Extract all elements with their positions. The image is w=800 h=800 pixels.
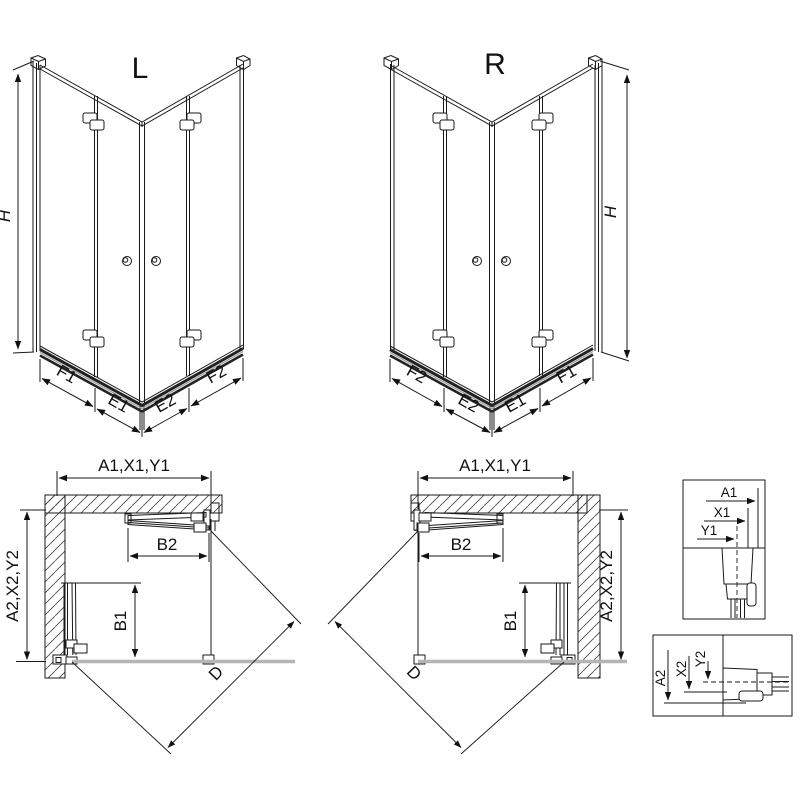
- door-top-slat-b: [421, 521, 503, 531]
- detail-label-x1: X1: [714, 505, 731, 520]
- d-dim-line: [168, 622, 294, 748]
- view-label-right: R: [484, 48, 506, 81]
- diagonal-dim-label: D: [205, 662, 227, 684]
- view-label-left: L: [132, 52, 149, 85]
- door-knob-icon: [123, 257, 132, 266]
- wall-profile-left: [33, 62, 40, 352]
- reference-lines: [664, 692, 746, 703]
- profile-bracket: [739, 691, 763, 701]
- wall-top: [45, 495, 222, 513]
- width-dim-label: A1,X1,Y1: [98, 456, 170, 475]
- door-top-dim-label: B2: [157, 535, 178, 554]
- d-dim-line: [335, 622, 461, 748]
- height-dim-label: H: [0, 209, 14, 222]
- depth-dim-label: A2,X2,Y2: [3, 550, 22, 622]
- hinge-icon: [83, 113, 104, 130]
- perspective-view-right: H F2 E2 E1 F1 R: [384, 48, 629, 437]
- detail-box-depth: A2 X2 Y2: [653, 635, 792, 716]
- door-hinge-bracket: [191, 513, 203, 521]
- door-hinge-bracket: [541, 644, 554, 653]
- hinge-icon: [433, 330, 454, 347]
- technical-drawing-page: H F1 E1 E2 F2 L H: [0, 0, 800, 800]
- door-top-slat-a: [425, 513, 503, 521]
- wall-top: [411, 495, 587, 513]
- fold-lines: [95, 96, 190, 377]
- door-top-dim-label: B2: [451, 535, 472, 554]
- detail-label-a1: A1: [721, 485, 738, 500]
- d-extension-lines: [328, 531, 564, 754]
- door-side-dim-label: B1: [501, 611, 520, 632]
- width-dim-label: A1,X1,Y1: [459, 456, 531, 475]
- detail-label-y2: Y2: [693, 651, 708, 668]
- plan-view-right: B2 B1 A2,X2,Y2 A1,X1,Y1 D: [328, 456, 628, 754]
- hinge-icon: [180, 330, 201, 347]
- hinge-icon: [532, 113, 553, 130]
- height-dim-label: H: [601, 205, 620, 218]
- door-knob-icon: [502, 257, 511, 266]
- hinge-icon: [180, 113, 201, 130]
- door-hinge-bracket: [194, 523, 206, 532]
- door-side-dim-label: B1: [111, 611, 130, 632]
- hinge-icon: [83, 330, 104, 347]
- wall-left: [45, 495, 65, 678]
- technical-drawing-canvas: H F1 E1 E2 F2 L H: [0, 0, 800, 800]
- door-hinge-bracket: [419, 513, 431, 521]
- door-hinge-bracket: [417, 523, 429, 532]
- glass-outer-edge-left: [391, 64, 395, 350]
- detail-box-width: A1 X1 Y1: [683, 480, 765, 619]
- corner-post: [140, 122, 145, 430]
- door-knob-icon: [473, 257, 482, 266]
- door-hinge-bracket: [74, 644, 87, 653]
- d-extension-lines: [72, 531, 301, 754]
- top-cap-left: [384, 56, 399, 70]
- plan-view-left: B2 B1 A2,X2,Y2 A1,X1,Y1 D: [3, 456, 301, 754]
- profile-bracket: [747, 583, 756, 606]
- detail-label-y1: Y1: [701, 523, 718, 538]
- perspective-view-left: H F1 E1 E2 F2 L: [0, 52, 250, 437]
- corner-post: [490, 122, 495, 430]
- detail-label-x2: X2: [674, 661, 689, 678]
- hinge-icon: [433, 113, 454, 130]
- diagonal-dim-label: D: [403, 662, 425, 684]
- depth-dim-label: A2,X2,Y2: [597, 550, 616, 622]
- door-knob-icon: [152, 257, 161, 266]
- glass-outer-edge-right: [240, 64, 244, 350]
- detail-label-a2: A2: [653, 670, 668, 687]
- fold-lines: [444, 96, 543, 377]
- reference-lines: [748, 488, 758, 548]
- h-extension-lines: [13, 61, 34, 353]
- hinge-icon: [532, 330, 553, 347]
